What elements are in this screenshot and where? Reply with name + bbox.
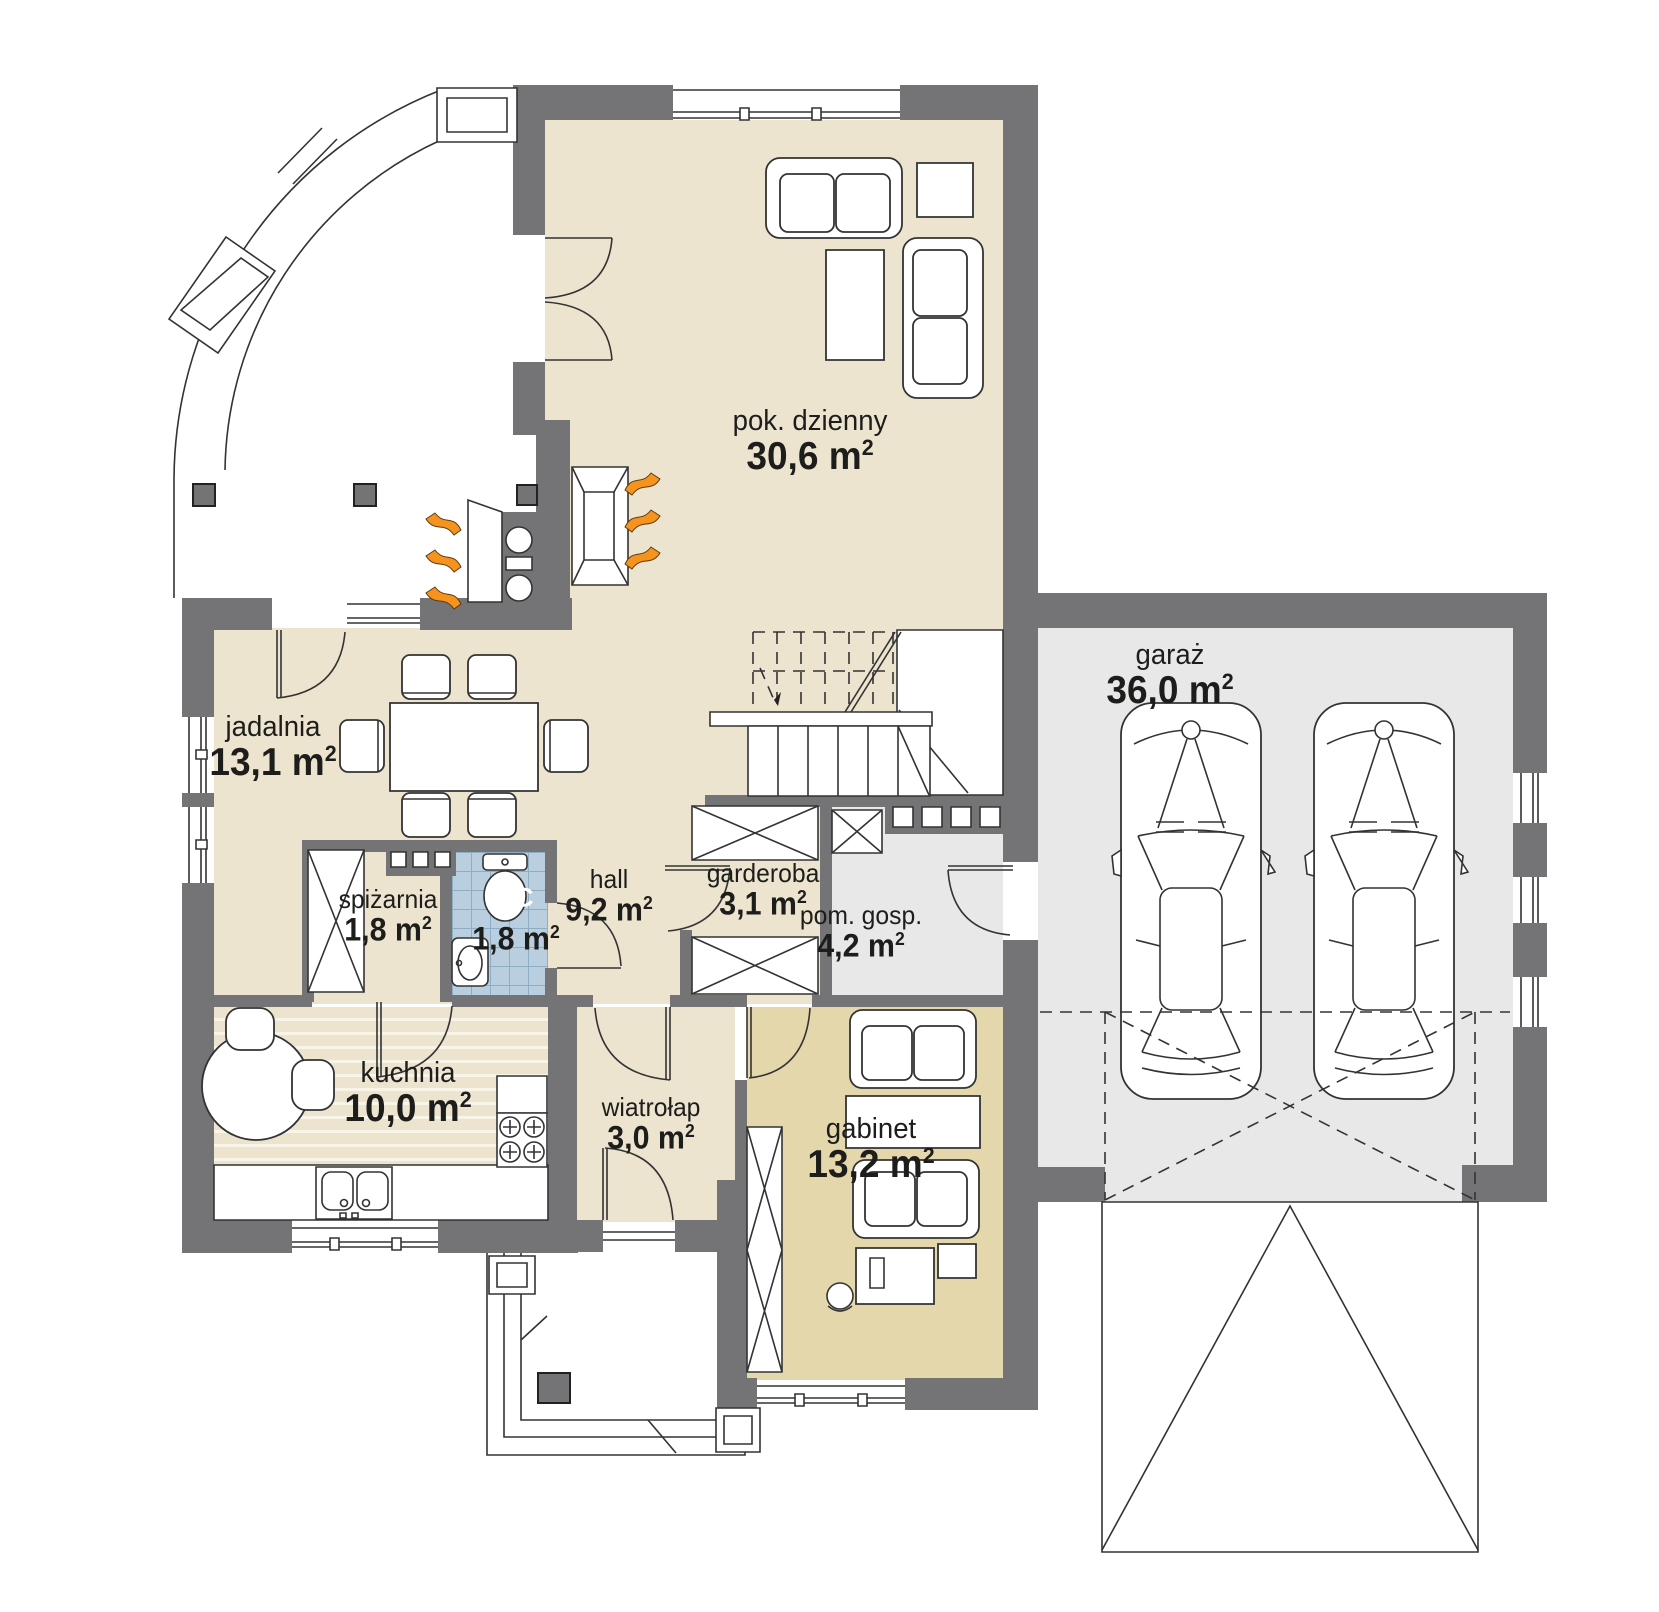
bookcase [747, 1127, 782, 1372]
utility-garage-door [948, 862, 1038, 940]
room-label-garaz: garaż 36,0 m2 [1106, 640, 1233, 712]
window [757, 1380, 905, 1408]
coffee-table [826, 250, 884, 360]
room-label-wc: WC [489, 883, 534, 914]
window [184, 717, 212, 793]
terrace-french-door [545, 238, 612, 360]
side-table [917, 163, 973, 217]
window [673, 85, 900, 120]
office-door [747, 1007, 810, 1078]
window [1515, 773, 1545, 823]
room-label-spizarnia: spiżarnia 1,8 m2 [339, 886, 438, 947]
porch-steps [487, 1253, 760, 1455]
window [184, 807, 212, 883]
floor-plan: pok. dzienny 30,6 m2 garaż 36,0 m2 jadal… [0, 0, 1659, 1612]
window [1515, 877, 1545, 923]
room-label-jadalnia: jadalnia 13,1 m2 [209, 712, 336, 784]
sofa [766, 158, 902, 238]
driveway [1102, 1202, 1478, 1552]
car [1112, 703, 1275, 1099]
room-label-kuchnia: kuchnia 10,0 m2 [344, 1058, 471, 1130]
room-label-pok-dzienny: pok. dzienny 30,6 m2 [733, 406, 888, 478]
staircase [710, 630, 1003, 796]
dining-terrace-door [272, 600, 347, 698]
room-label-gabinet: gabinet 13,2 m2 [807, 1114, 934, 1186]
window [1515, 977, 1545, 1027]
room-label-wiatrolap: wiatrołap 3,0 m2 [602, 1094, 701, 1155]
car [1305, 703, 1468, 1099]
utility-box [832, 807, 1000, 853]
window [347, 600, 420, 628]
window [292, 1222, 438, 1252]
fireplace [468, 467, 628, 602]
vestibule-hall-door [595, 1007, 670, 1080]
terrace-colonnade [169, 88, 517, 598]
sofa [903, 238, 983, 398]
plan-linework [0, 0, 1659, 1612]
room-area-wc: 1,8 m2 [472, 922, 560, 956]
desk [827, 1244, 976, 1311]
room-label-hall: hall 9,2 m2 [565, 866, 653, 927]
dining-set [340, 655, 588, 837]
room-label-pom-gosp: pom. gosp. 4,2 m2 [800, 902, 922, 963]
front-door [603, 1148, 675, 1252]
